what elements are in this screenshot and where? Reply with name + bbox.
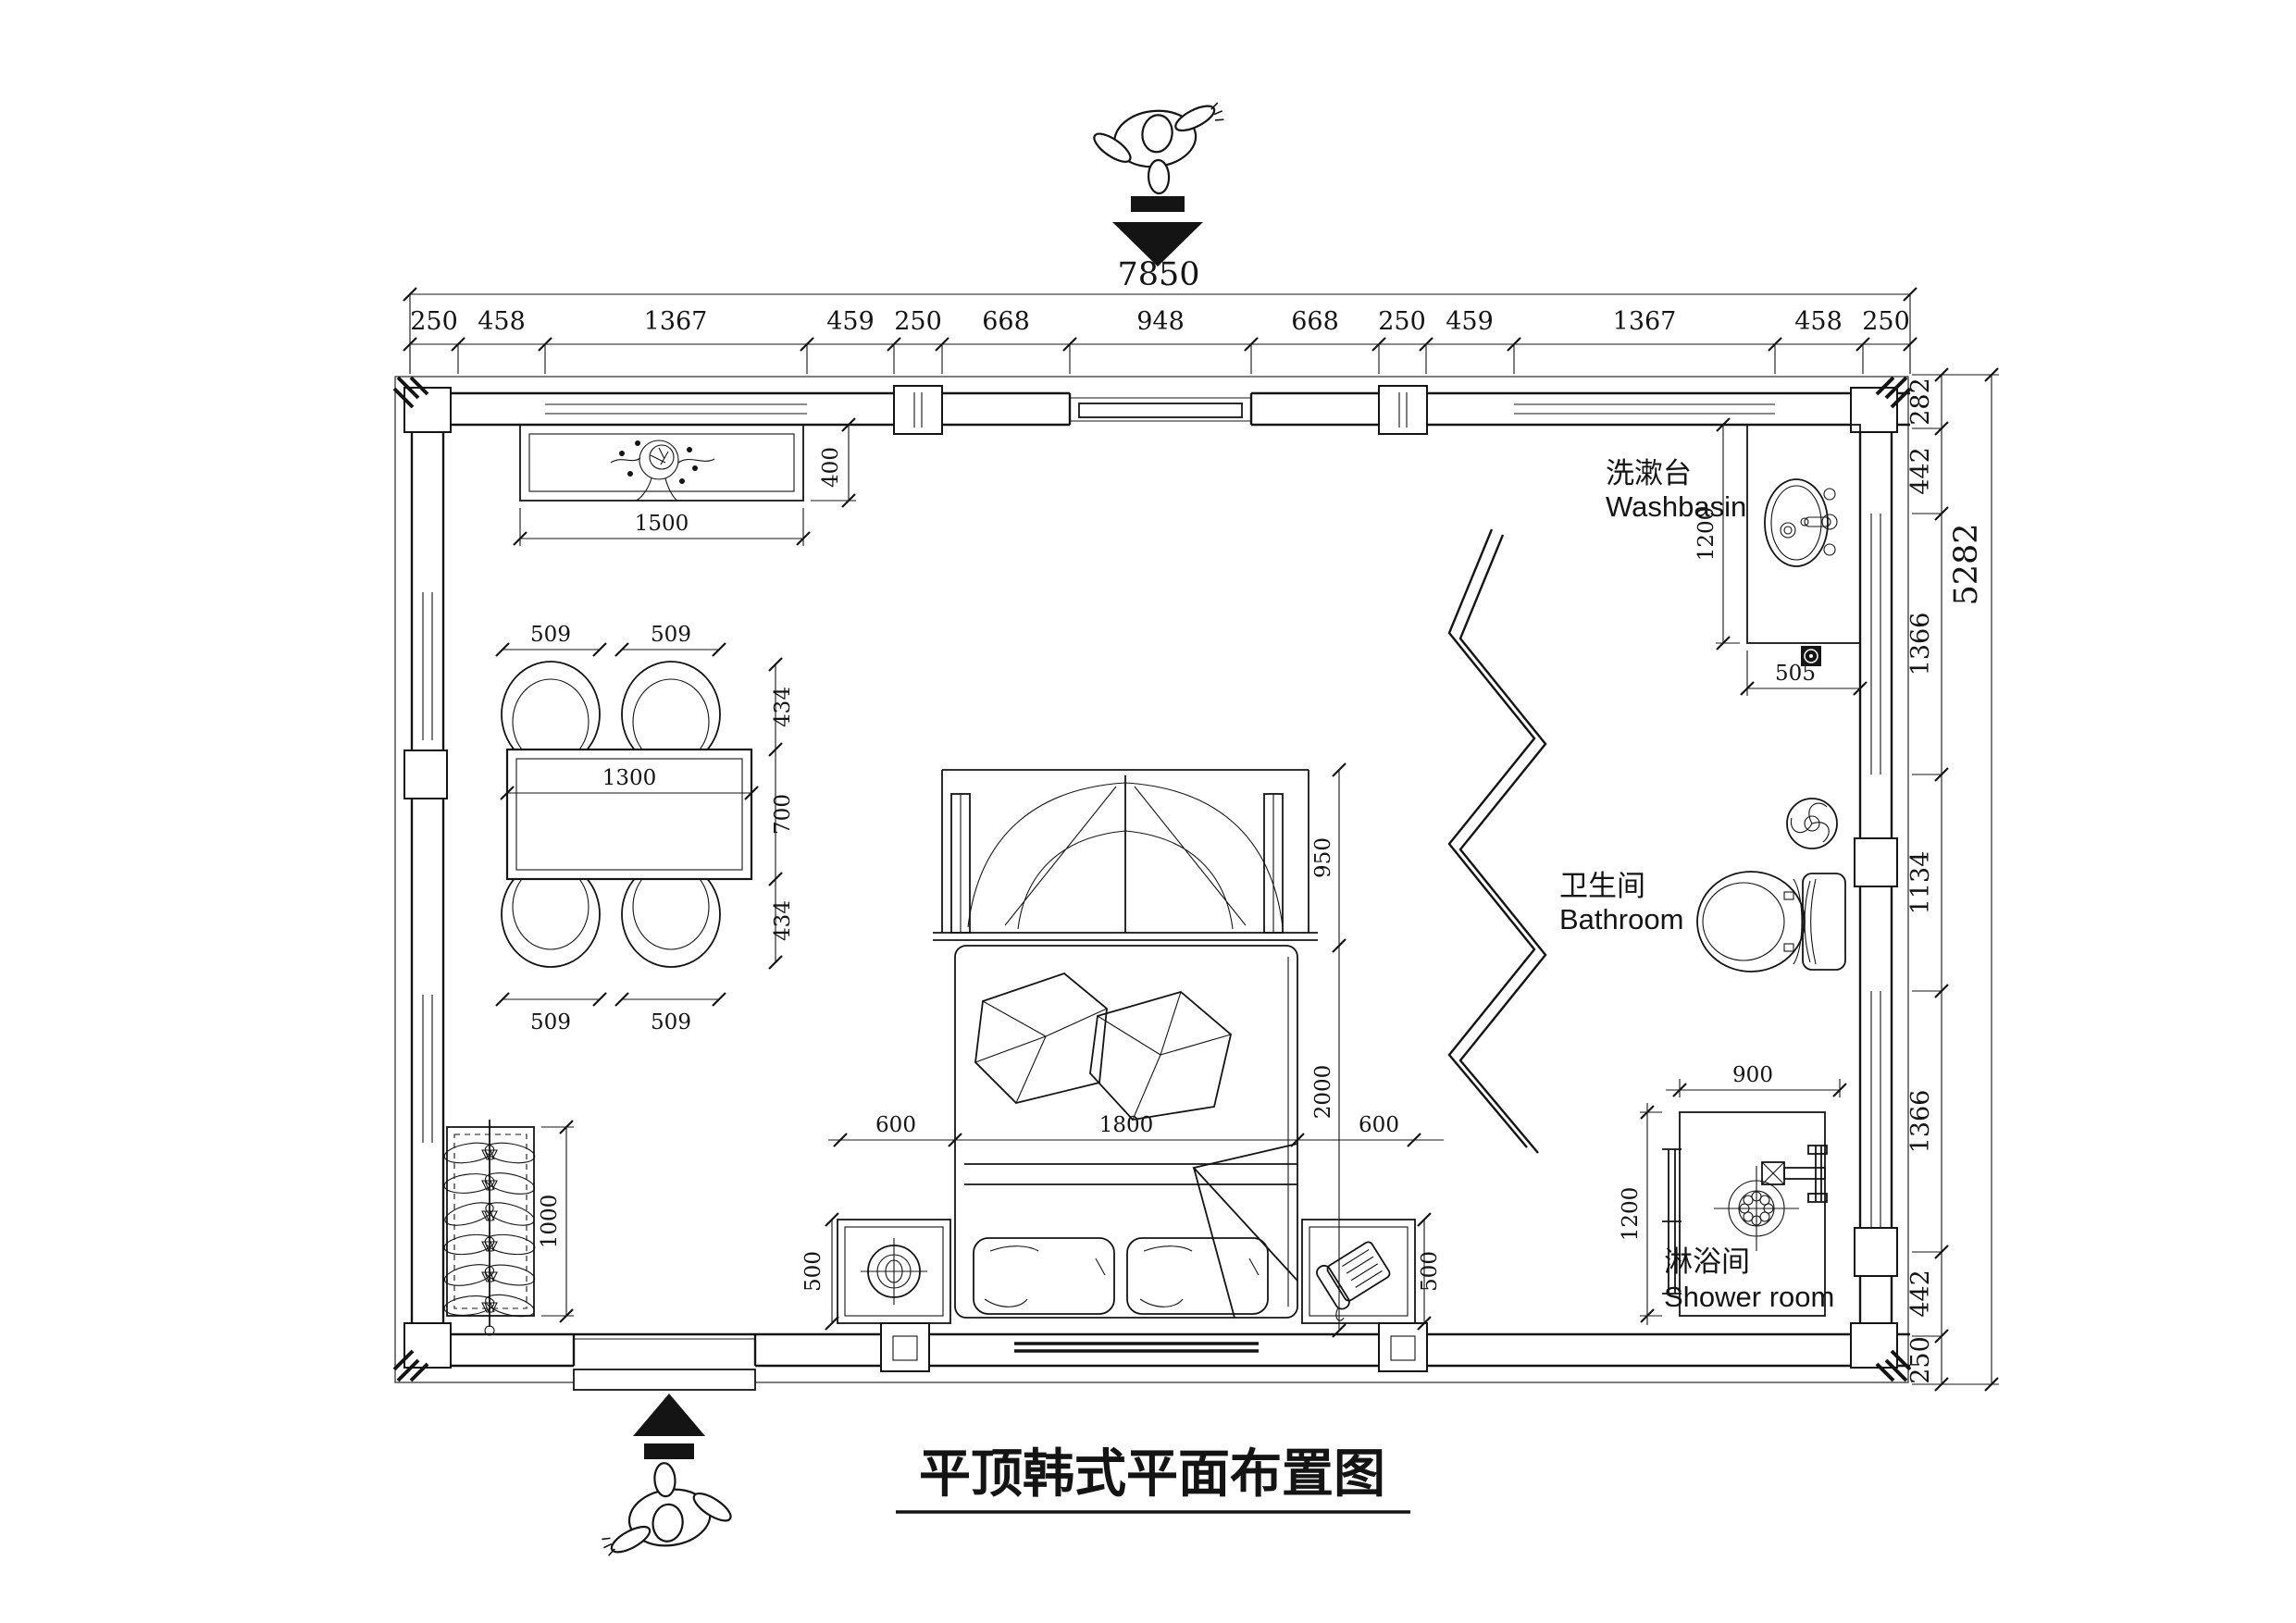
dim-top-total: 7850 <box>1117 256 1199 293</box>
dim-top-2: 1367 <box>644 307 708 336</box>
dim-top-7: 668 <box>1291 307 1339 336</box>
dim-washbasin-width: 505 <box>1775 662 1816 686</box>
bed-group: 950 2000 600 1800 600 500 500 <box>801 763 1444 1337</box>
label-washbasin-en: Washbasin <box>1606 490 1746 523</box>
nightstand-left <box>838 1220 950 1323</box>
dim-chair-br: 509 <box>651 1010 691 1035</box>
bed-cushions <box>975 973 1231 1120</box>
dim-table-side-top: 434 <box>771 687 795 727</box>
dim-right-0: 282 <box>1906 378 1935 426</box>
page-title: 平顶韩式平面布置图 <box>919 1444 1385 1503</box>
dim-top-11: 458 <box>1794 307 1843 336</box>
dim-right-1: 442 <box>1906 447 1935 495</box>
bathroom-zone: 卫生间 Bathroom <box>1559 799 1845 972</box>
dim-top-12: 250 <box>1862 307 1910 336</box>
dim-console-width: 1500 <box>635 512 689 536</box>
dim-top-0: 250 <box>410 307 458 336</box>
dim-chain-top: 7850 250 458 1367 459 250 668 948 668 25… <box>403 256 1917 374</box>
window-bottom <box>1014 1344 1259 1351</box>
nightstand-right <box>1302 1220 1415 1323</box>
dim-right-3: 1134 <box>1906 851 1935 915</box>
person-bottom-icon <box>601 1456 739 1568</box>
entry-bottom <box>601 1394 739 1568</box>
dim-top-6: 948 <box>1136 307 1185 336</box>
washbasin-counter <box>1747 425 1860 643</box>
dim-bed-head: 950 <box>1311 837 1335 878</box>
dim-ns-left: 500 <box>801 1251 825 1292</box>
entry-top <box>1085 85 1226 266</box>
dim-bed-left: 600 <box>875 1113 916 1137</box>
window-left <box>423 592 432 1143</box>
arrow-up-icon <box>633 1394 705 1436</box>
telephone-icon <box>1309 1237 1398 1321</box>
dim-chain-right: 282 442 1366 1134 1366 442 250 5282 <box>1906 368 1999 1391</box>
dim-wardrobe: 1000 <box>538 1195 562 1249</box>
dim-bed-right: 600 <box>1359 1113 1399 1137</box>
dim-shower-depth: 1200 <box>1619 1187 1643 1242</box>
shower-valve-icon <box>1762 1146 1827 1202</box>
dim-table-depth: 700 <box>771 794 795 835</box>
lamp-icon <box>861 1238 927 1305</box>
label-shower-cn: 淋浴间 <box>1664 1245 1750 1278</box>
dim-table-width: 1300 <box>602 766 657 790</box>
dim-top-10: 1367 <box>1613 307 1677 336</box>
dim-right-total: 5282 <box>1948 523 1985 605</box>
dim-chair-tl: 509 <box>530 623 571 647</box>
label-shower-en: Shower room <box>1664 1281 1834 1313</box>
door-bottom-leaf <box>574 1369 755 1390</box>
dim-chair-bl: 509 <box>530 1010 571 1035</box>
dim-top-3: 459 <box>826 307 875 336</box>
dim-top-1: 458 <box>478 307 526 336</box>
floor-plan: 400 1500 509 509 509 509 434 700 434 <box>0 0 2296 1623</box>
door-top-leaf <box>1079 403 1242 417</box>
dim-bed-length: 2000 <box>1311 1065 1335 1120</box>
label-bathroom-en: Bathroom <box>1559 903 1683 935</box>
washbasin-icon <box>1765 479 1837 566</box>
dim-table-side-bot: 434 <box>771 900 795 941</box>
dim-bed-width: 1800 <box>1099 1113 1154 1137</box>
dim-ns-right: 500 <box>1418 1251 1442 1292</box>
bed-bench <box>933 770 1318 940</box>
arrow-top-bar <box>1131 196 1185 212</box>
dim-right-2: 1366 <box>1906 613 1935 676</box>
label-washbasin-cn: 洗漱台 <box>1606 457 1692 489</box>
dim-right-6: 250 <box>1906 1336 1935 1384</box>
arrow-bottom-bar <box>644 1443 694 1459</box>
drawing-title: 平顶韩式平面布置图 <box>896 1444 1410 1512</box>
dim-top-4: 250 <box>894 307 942 336</box>
folding-partition <box>1449 529 1545 1153</box>
shower-room: 900 1200 淋浴间 Shower room <box>1619 1063 1846 1325</box>
console-cabinet: 400 1500 <box>514 418 856 546</box>
drain-swirl-icon <box>1787 799 1837 849</box>
dining-set: 509 509 509 509 434 700 434 1300 <box>496 623 795 1035</box>
dim-console-depth: 400 <box>819 447 843 488</box>
dim-right-5: 442 <box>1906 1270 1935 1318</box>
washbasin-zone: 1200 505 洗漱台 Washbasin <box>1606 418 1867 696</box>
toilet-icon <box>1697 872 1845 972</box>
dim-top-5: 668 <box>982 307 1030 336</box>
dim-right-4: 1366 <box>1906 1090 1935 1154</box>
bed-blanket <box>964 1144 1297 1318</box>
dim-top-9: 459 <box>1446 307 1494 336</box>
dim-chair-tr: 509 <box>651 623 691 647</box>
label-bathroom-cn: 卫生间 <box>1559 870 1645 902</box>
dim-top-8: 250 <box>1378 307 1426 336</box>
dim-shower-width: 900 <box>1732 1063 1773 1087</box>
wardrobe-rack: 1000 <box>442 1120 574 1335</box>
person-top-icon <box>1085 85 1226 203</box>
